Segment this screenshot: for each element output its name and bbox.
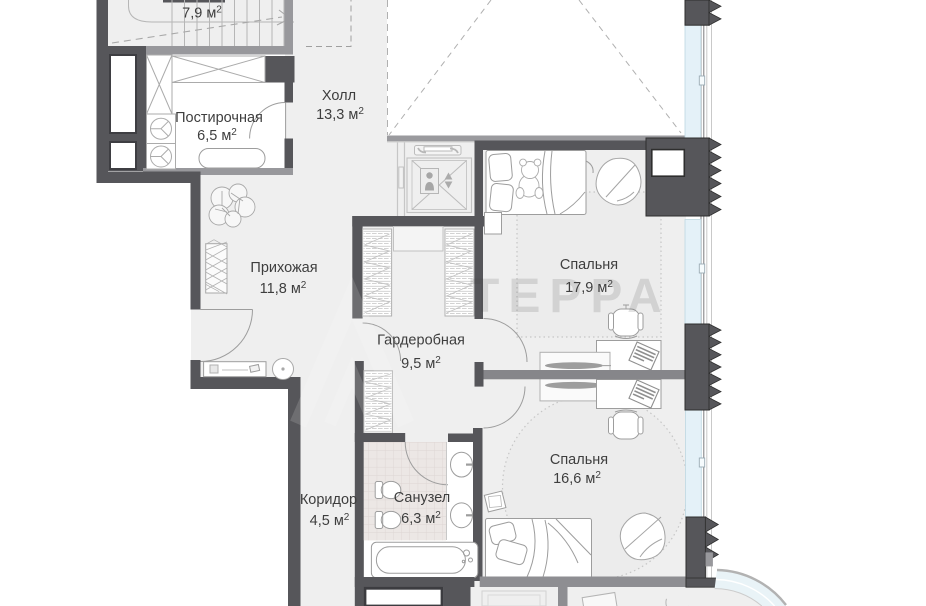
svg-text:4,5 м2: 4,5 м2	[310, 512, 350, 529]
svg-text:16,6 м2: 16,6 м2	[553, 470, 601, 487]
svg-text:Коридор: Коридор	[300, 492, 357, 508]
svg-text:Гардеробная: Гардеробная	[377, 333, 465, 349]
svg-text:9,5 м2: 9,5 м2	[401, 355, 441, 372]
svg-text:17,9 м2: 17,9 м2	[565, 279, 613, 296]
svg-text:6,5 м2: 6,5 м2	[197, 127, 237, 144]
svg-text:Санузел: Санузел	[394, 490, 451, 506]
svg-text:Прихожая: Прихожая	[250, 260, 317, 276]
svg-text:Постирочная: Постирочная	[175, 110, 263, 126]
svg-text:11,8 м2: 11,8 м2	[260, 280, 307, 297]
svg-text:ТЕРРА: ТЕРРА	[470, 270, 671, 323]
svg-text:7,9 м2: 7,9 м2	[182, 5, 222, 22]
svg-text:6,3 м2: 6,3 м2	[401, 510, 441, 527]
svg-text:13,3 м2: 13,3 м2	[316, 106, 364, 123]
svg-text:Холл: Холл	[322, 88, 356, 104]
svg-text:Спальня: Спальня	[560, 257, 618, 273]
svg-text:Спальня: Спальня	[550, 452, 608, 468]
